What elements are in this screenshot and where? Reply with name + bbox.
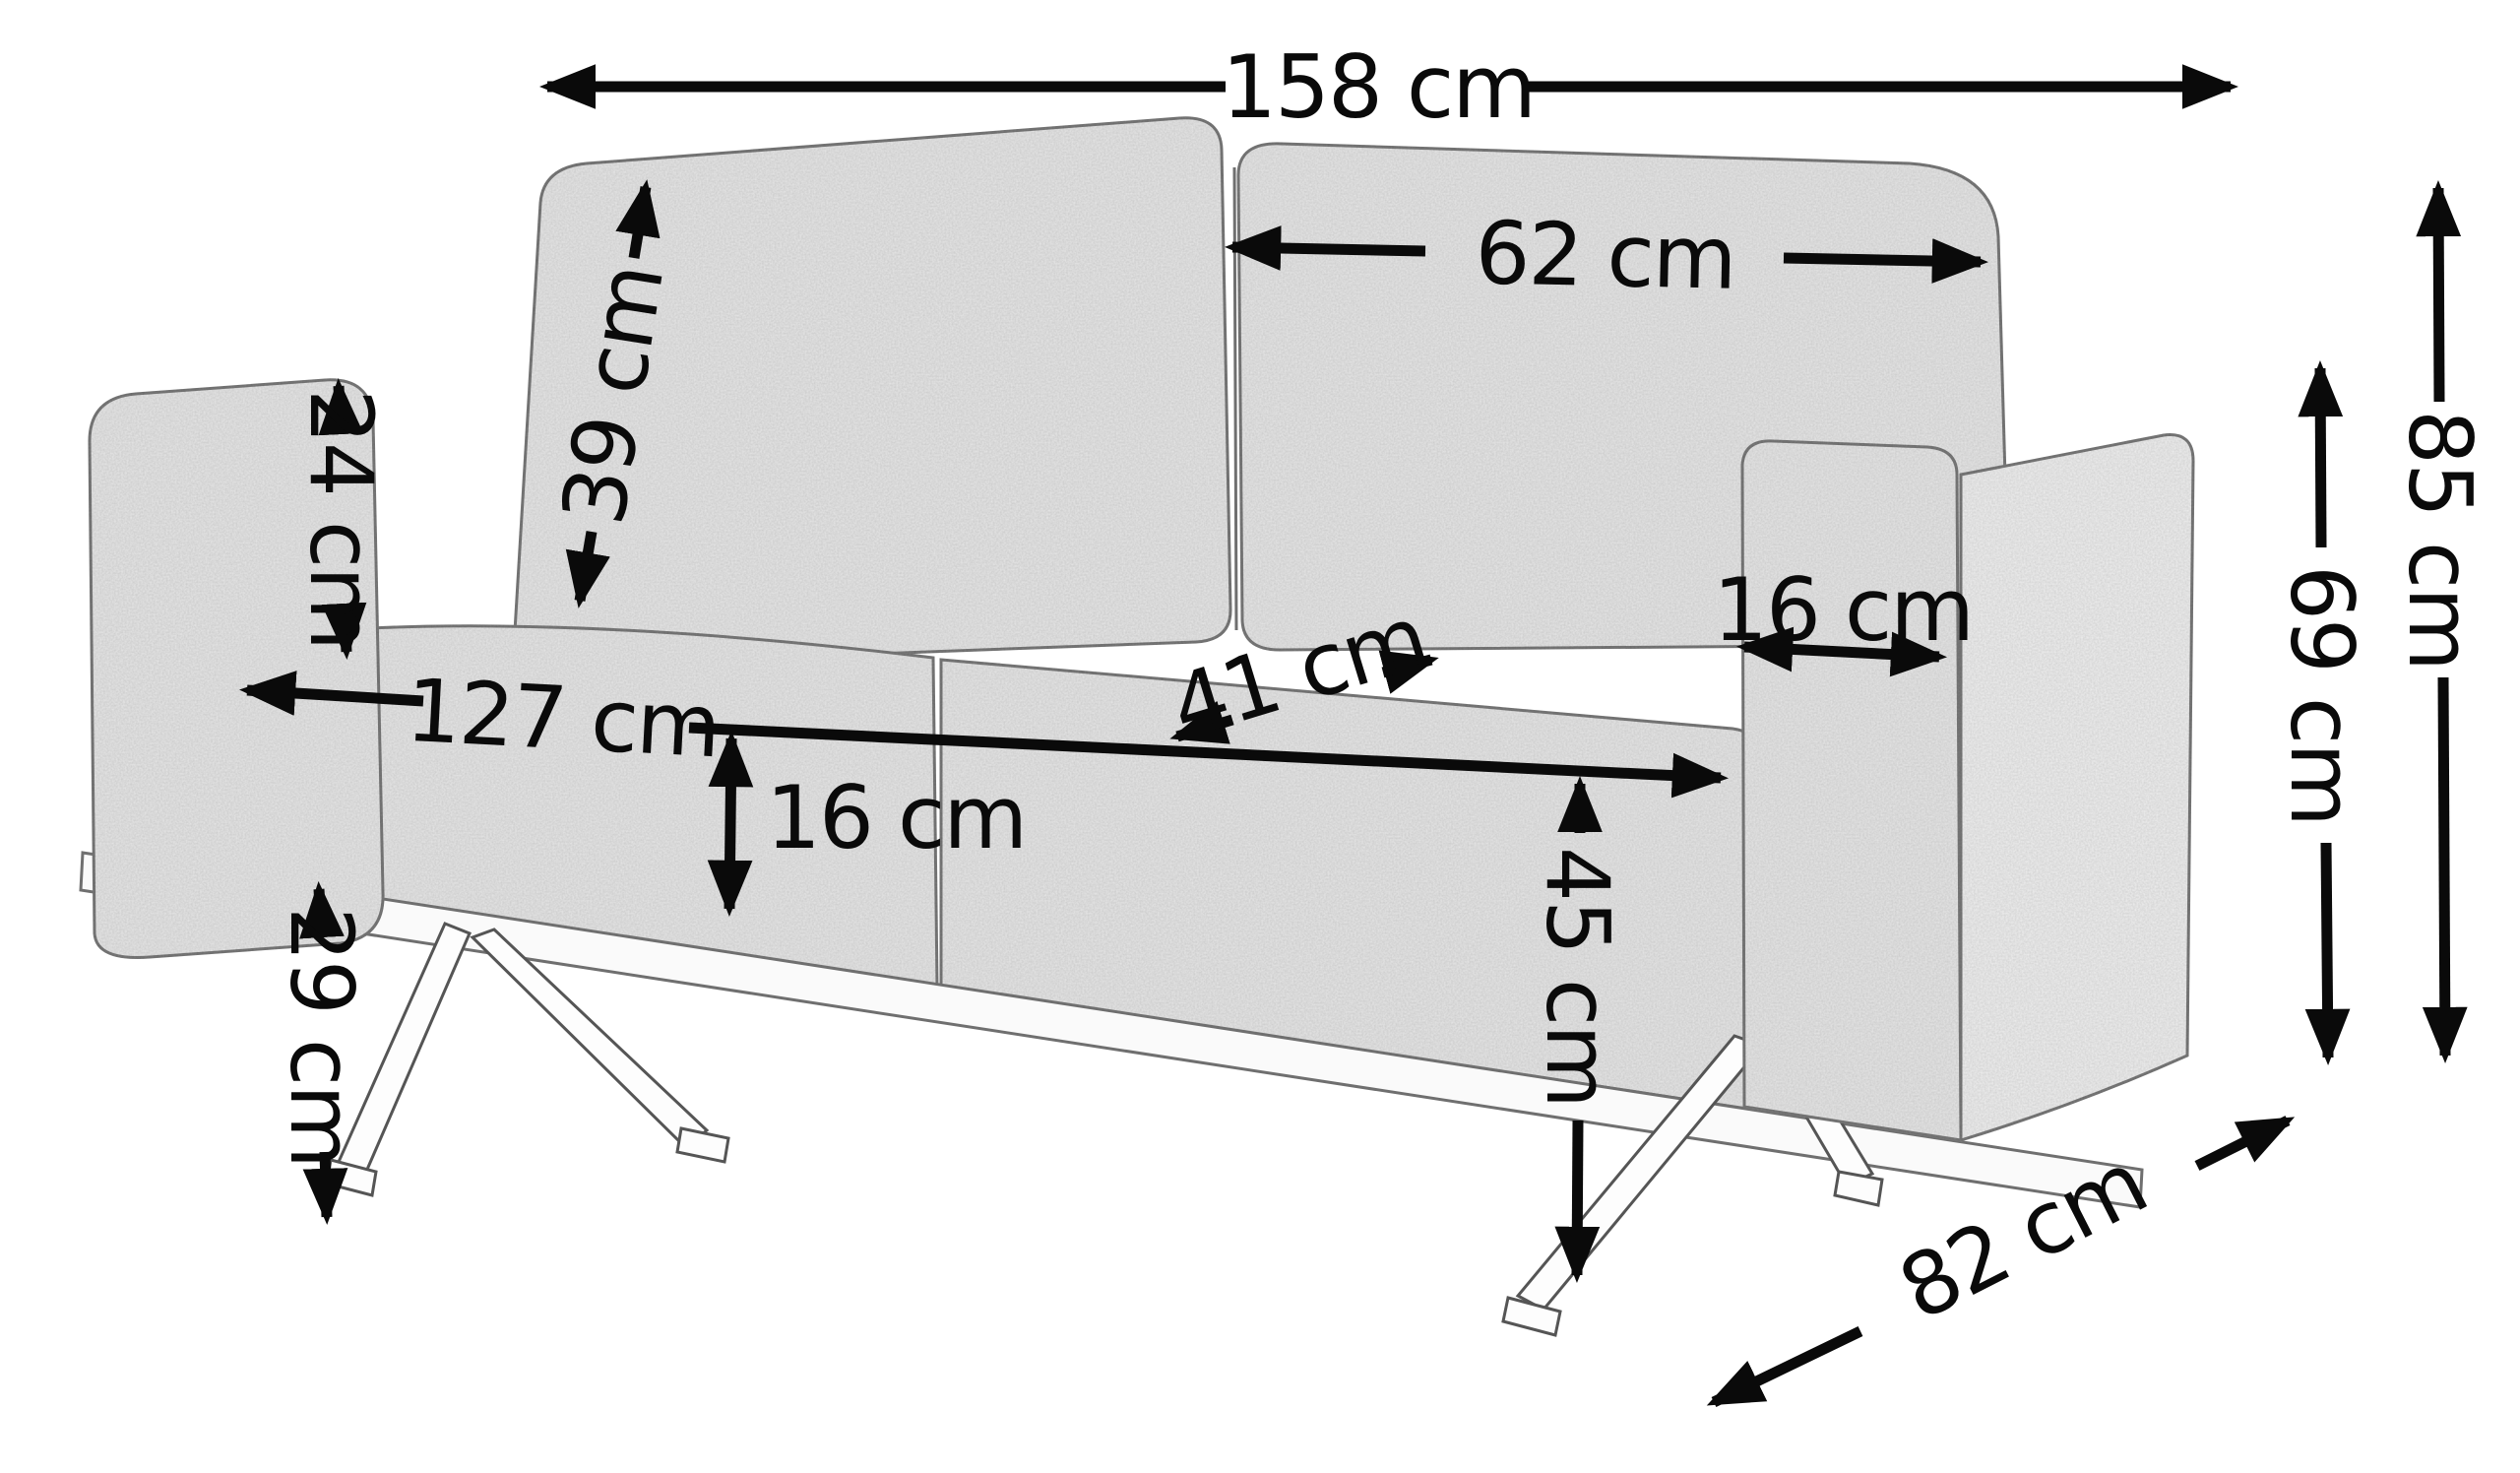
dimension-arrow <box>2197 1121 2288 1166</box>
dimension-arrow <box>1577 1121 1578 1275</box>
dimension-label: 62 cm <box>1475 202 1736 309</box>
dimension-label: 16 cm <box>766 767 1026 868</box>
back-cushion-seam <box>1234 167 1236 630</box>
dimension-label: 158 cm <box>1222 36 1535 138</box>
dimension-arm-height: 69 cm <box>2271 368 2372 1057</box>
dimension-total-width: 158 cm <box>547 36 2231 138</box>
dimension-arrow <box>1784 258 1981 262</box>
dimension-armrest-drop: 24 cm <box>290 386 392 652</box>
dimension-label: 127 cm <box>404 660 722 778</box>
dimension-arrow <box>1714 1331 1860 1402</box>
dimension-label: 45 cm <box>1527 847 1628 1107</box>
front-right-leg-foot <box>1503 1298 1560 1335</box>
dimension-arrow <box>1232 247 1425 251</box>
dimension-label: 29 cm <box>271 907 372 1167</box>
sofa-sketch <box>81 118 2193 1335</box>
dimension-arrow <box>2438 188 2439 402</box>
dimension-label: 24 cm <box>290 389 392 649</box>
dimension-total-height: 85 cm <box>2389 188 2490 1056</box>
dimension-label: 85 cm <box>2389 410 2490 670</box>
dimension-armrest-width: 16 cm <box>1713 559 1973 661</box>
dimension-arrow <box>2320 368 2321 547</box>
seat-cushion-right <box>941 660 1762 1111</box>
dimension-arrow <box>2326 843 2328 1057</box>
dimension-arrow <box>729 738 731 909</box>
armrest-right-front <box>1742 441 1961 1140</box>
dimension-label: 69 cm <box>2271 565 2372 825</box>
inner-right-leg-foot <box>1835 1172 1882 1205</box>
armrest-right-side <box>1961 435 2193 1140</box>
dimension-diagram: 158 cm 62 cm 39 cm 24 cm 127 cm 41 cm 16… <box>0 0 2520 1473</box>
dimension-arrow <box>2443 677 2445 1056</box>
inner-left-leg-foot <box>677 1128 728 1162</box>
